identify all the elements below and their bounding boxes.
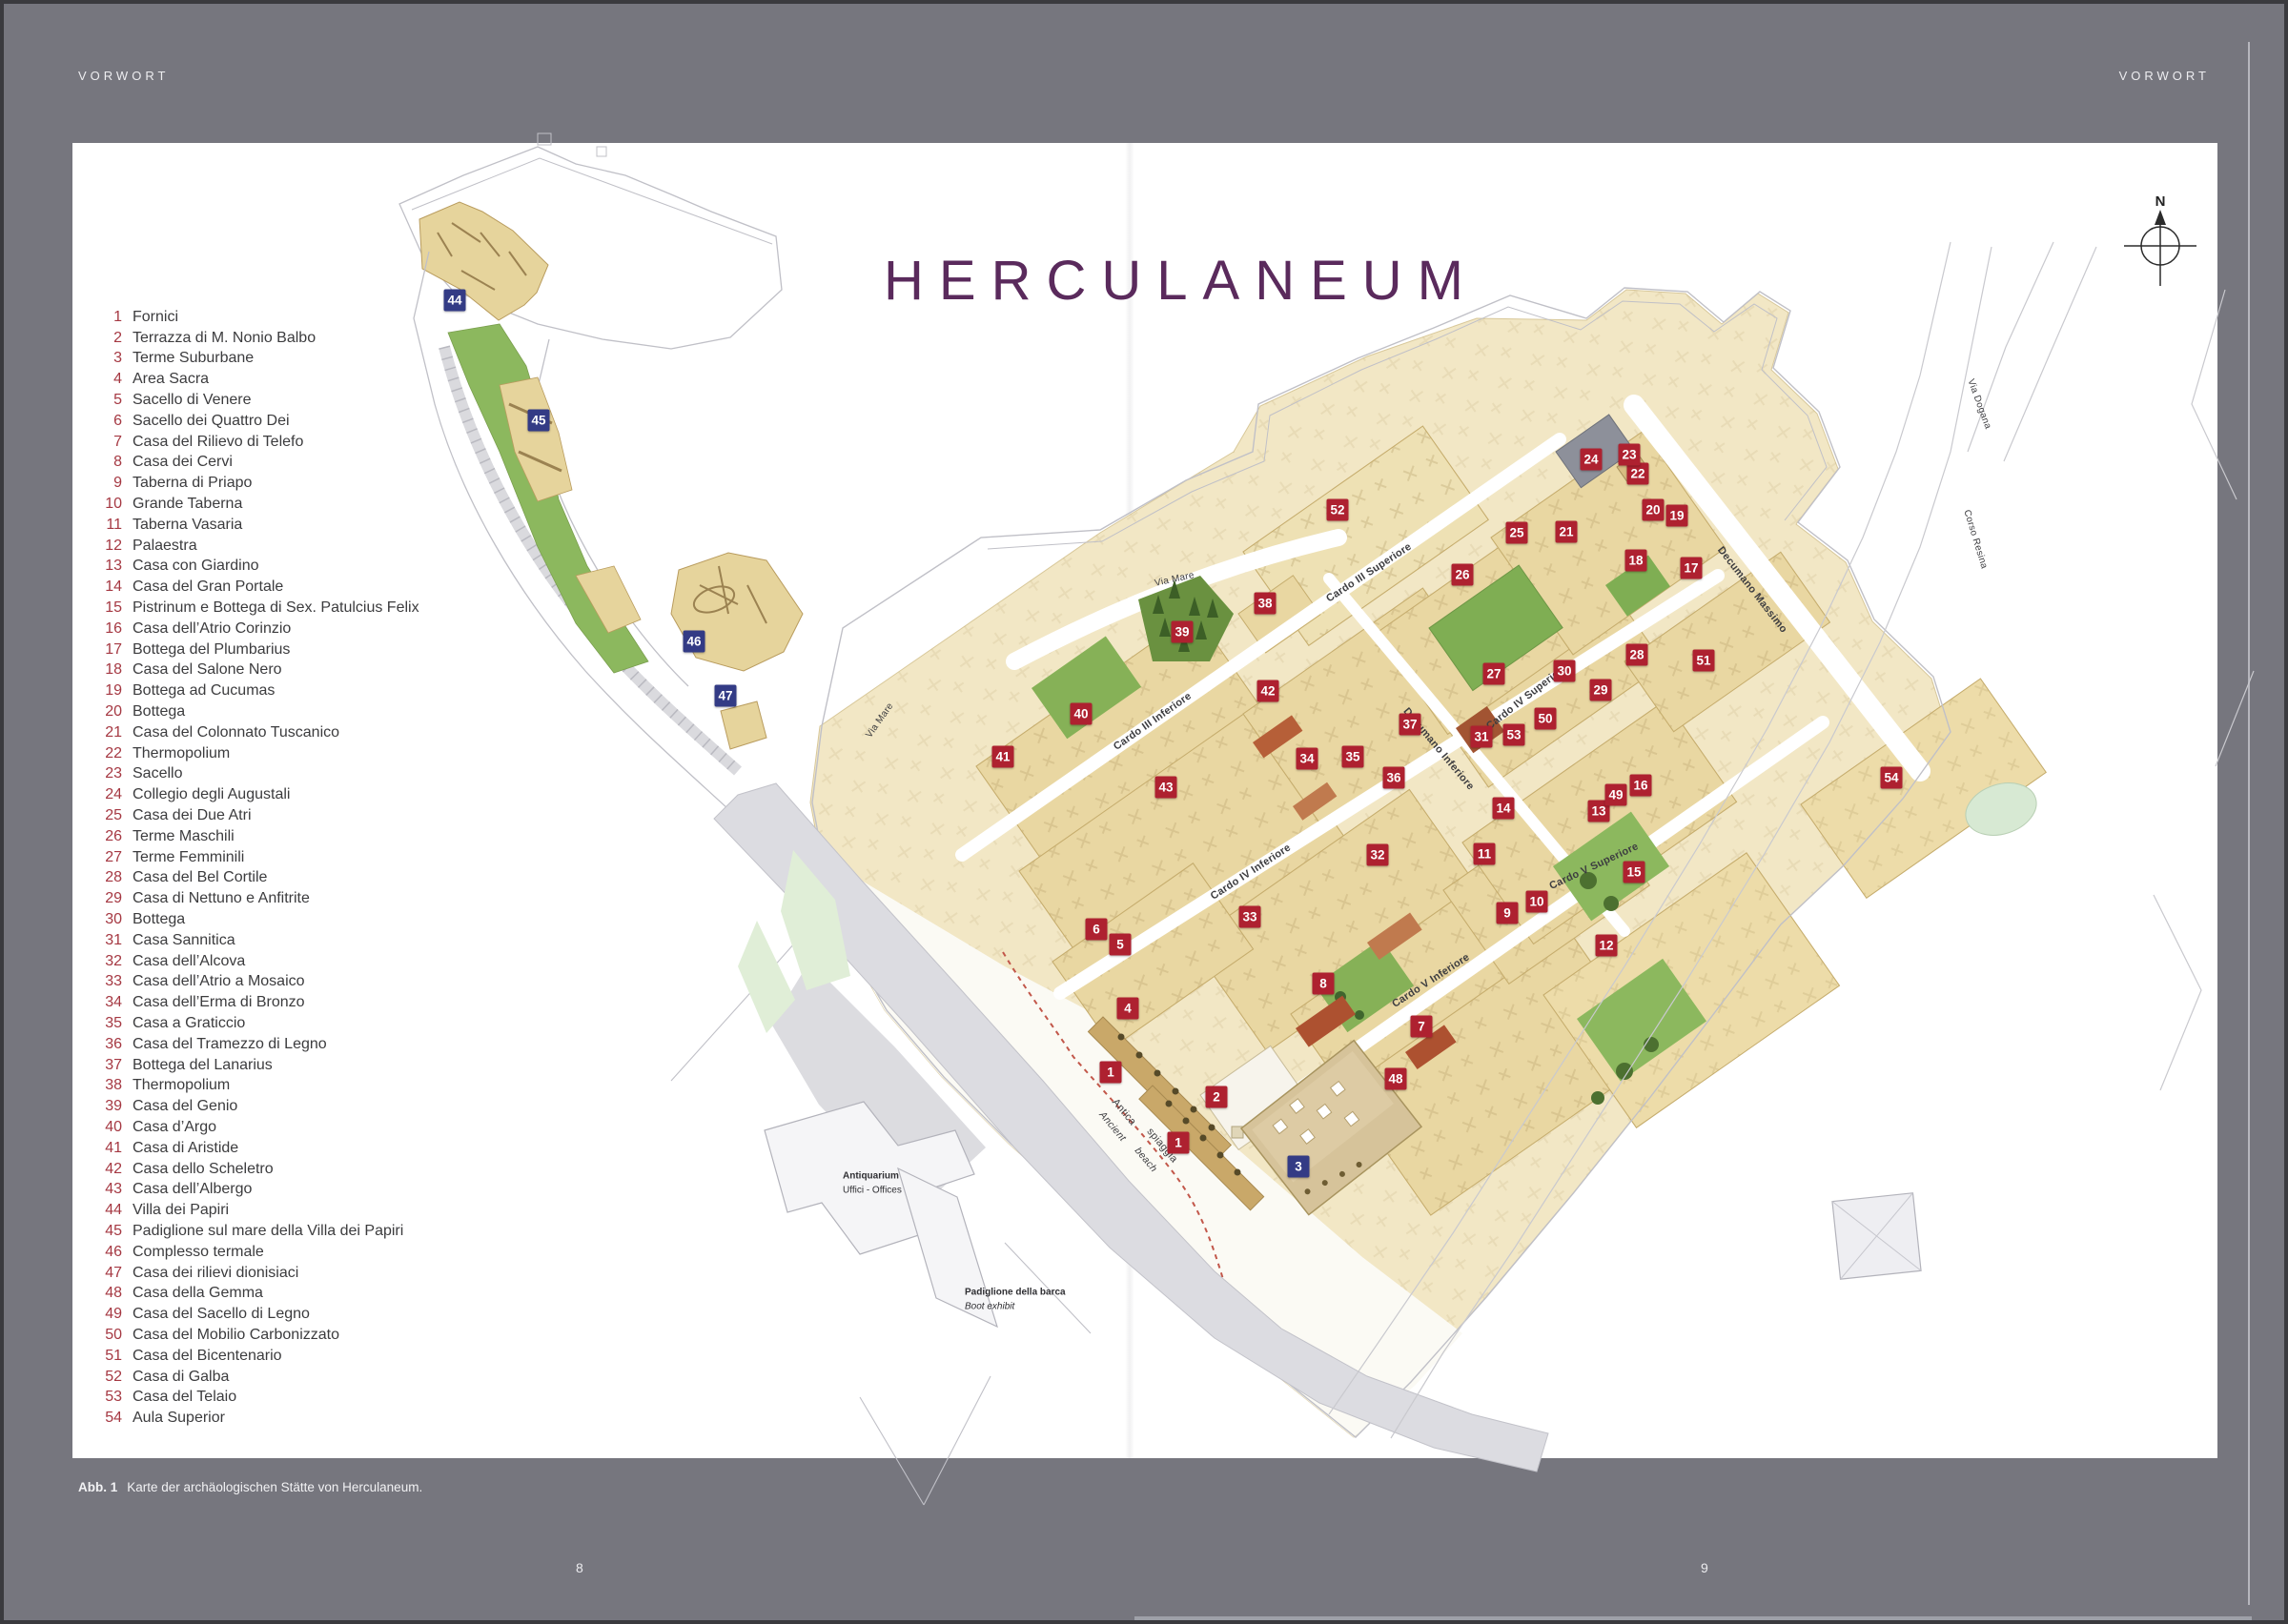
legend-number: 18 [88,661,122,679]
page-number-left: 8 [576,1560,583,1575]
legend-label: Thermopolium [133,745,230,762]
figure-caption-text: Karte der archäologischen Stätte von Her… [127,1480,422,1494]
legend-label: Casa d’Argo [133,1119,216,1136]
legend-item-10: 10Grande Taberna [88,494,419,515]
legend-number: 17 [88,641,122,659]
legend-item-48: 48Casa della Gemma [88,1283,419,1304]
legend-number: 50 [88,1327,122,1344]
legend-number: 54 [88,1410,122,1427]
legend-item-17: 17Bottega del Plumbarius [88,639,419,660]
legend-label: Casa del Sacello di Legno [133,1306,310,1323]
figure-caption-label: Abb. 1 [78,1480,117,1494]
legend-label: Bottega del Lanarius [133,1057,273,1074]
legend-item-39: 39Casa del Genio [88,1096,419,1117]
legend-number: 13 [88,558,122,575]
legend-label: Terme Femminili [133,849,244,866]
legend-number: 24 [88,786,122,803]
legend-item-44: 44Villa dei Papiri [88,1200,419,1221]
legend-item-40: 40Casa d’Argo [88,1117,419,1138]
legend-item-23: 23Sacello [88,764,419,785]
legend-number: 15 [88,599,122,617]
legend-label: Casa dell’Atrio a Mosaico [133,973,305,990]
legend-label: Casa dei Due Atri [133,807,252,824]
legend-item-42: 42Casa dello Scheletro [88,1159,419,1180]
legend-number: 7 [88,434,122,451]
legend-label: Casa della Gemma [133,1285,263,1302]
legend-number: 2 [88,330,122,347]
legend-number: 29 [88,890,122,907]
legend-number: 14 [88,579,122,596]
legend-label: Casa dell’Atrio Corinzio [133,620,291,638]
legend-label: Fornici [133,309,178,326]
legend-label: Casa del Colonnato Tuscanico [133,724,339,741]
legend-label: Casa del Genio [133,1098,237,1115]
legend-list: 1Fornici2Terrazza di M. Nonio Balbo3Term… [88,307,419,1429]
legend-label: Terrazza di M. Nonio Balbo [133,330,316,347]
legend-number: 6 [88,413,122,430]
legend-item-51: 51Casa del Bicentenario [88,1346,419,1367]
legend-item-52: 52Casa di Galba [88,1367,419,1388]
legend-number: 16 [88,620,122,638]
legend-label: Villa dei Papiri [133,1202,229,1219]
legend-number: 45 [88,1223,122,1240]
legend-number: 42 [88,1161,122,1178]
legend-item-31: 31Casa Sannitica [88,930,419,951]
legend-label: Grande Taberna [133,496,242,513]
legend-item-14: 14Casa del Gran Portale [88,577,419,598]
legend-label: Casa a Graticcio [133,1015,245,1032]
legend-item-16: 16Casa dell’Atrio Corinzio [88,619,419,639]
legend-label: Casa di Nettuno e Anfitrite [133,890,310,907]
legend-label: Casa con Giardino [133,558,259,575]
legend-item-43: 43Casa dell’Albergo [88,1179,419,1200]
legend-label: Sacello dei Quattro Dei [133,413,290,430]
legend-item-45: 45Padiglione sul mare della Villa dei Pa… [88,1221,419,1242]
legend-label: Sacello [133,765,182,782]
legend-number: 53 [88,1389,122,1406]
map-title: HERCULANEUM [884,249,1479,313]
running-head-right: VORWORT [2119,69,2210,83]
legend-item-34: 34Casa dell’Erma di Bronzo [88,992,419,1013]
legend-item-13: 13Casa con Giardino [88,557,419,578]
legend-item-46: 46Complesso termale [88,1242,419,1263]
legend-number: 26 [88,828,122,845]
legend-label: Taberna di Priapo [133,475,252,492]
legend-number: 36 [88,1036,122,1053]
legend-item-49: 49Casa del Sacello di Legno [88,1304,419,1325]
legend-item-38: 38Thermopolium [88,1075,419,1096]
legend-item-7: 7Casa del Rilievo di Telefo [88,432,419,453]
running-head-left: VORWORT [78,69,169,83]
legend-item-18: 18Casa del Salone Nero [88,660,419,681]
legend-number: 49 [88,1306,122,1323]
legend-item-12: 12Palaestra [88,536,419,557]
legend-item-30: 30Bottega [88,909,419,930]
legend-item-41: 41Casa di Aristide [88,1138,419,1159]
legend-label: Casa dell’Alcova [133,953,245,970]
legend-item-37: 37Bottega del Lanarius [88,1055,419,1076]
legend-label: Pistrinum e Bottega di Sex. Patulcius Fe… [133,599,419,617]
legend-label: Casa del Rilievo di Telefo [133,434,303,451]
legend-label: Casa dell’Albergo [133,1181,252,1198]
legend-number: 4 [88,371,122,388]
legend-label: Casa del Bicentenario [133,1348,282,1365]
legend-item-8: 8Casa dei Cervi [88,453,419,474]
legend-number: 33 [88,973,122,990]
legend-number: 10 [88,496,122,513]
legend-number: 8 [88,454,122,471]
legend-number: 5 [88,392,122,409]
legend-number: 46 [88,1244,122,1261]
legend-item-54: 54Aula Superior [88,1408,419,1429]
legend-number: 35 [88,1015,122,1032]
legend-item-35: 35Casa a Graticcio [88,1013,419,1034]
page-edge-right [2248,42,2250,1605]
legend-item-4: 4Area Sacra [88,369,419,390]
legend-label: Casa del Tramezzo di Legno [133,1036,327,1053]
legend-number: 41 [88,1140,122,1157]
legend-item-19: 19Bottega ad Cucumas [88,680,419,701]
legend-item-36: 36Casa del Tramezzo di Legno [88,1034,419,1055]
legend-item-29: 29Casa di Nettuno e Anfitrite [88,888,419,909]
legend-number: 11 [88,517,122,534]
legend-number: 28 [88,869,122,886]
page-edge-bottom [1134,1616,2252,1623]
legend-label: Complesso termale [133,1244,264,1261]
legend-label: Area Sacra [133,371,209,388]
legend-item-27: 27Terme Femminili [88,847,419,868]
legend-number: 48 [88,1285,122,1302]
legend-number: 3 [88,350,122,367]
legend-label: Palaestra [133,538,197,555]
legend-label: Casa di Galba [133,1369,229,1386]
legend-label: Aula Superior [133,1410,225,1427]
legend-item-53: 53Casa del Telaio [88,1387,419,1408]
legend-label: Casa Sannitica [133,932,235,949]
legend-number: 22 [88,745,122,762]
legend-item-21: 21Casa del Colonnato Tuscanico [88,722,419,743]
legend-item-26: 26Terme Maschili [88,826,419,847]
legend-label: Padiglione sul mare della Villa dei Papi… [133,1223,403,1240]
legend-item-33: 33Casa dell’Atrio a Mosaico [88,972,419,993]
legend-number: 52 [88,1369,122,1386]
legend-number: 44 [88,1202,122,1219]
legend-item-24: 24Collegio degli Augustali [88,784,419,805]
legend-item-1: 1Fornici [88,307,419,328]
legend-label: Casa del Mobilio Carbonizzato [133,1327,339,1344]
legend-item-9: 9Taberna di Priapo [88,473,419,494]
legend-item-20: 20Bottega [88,701,419,722]
legend-item-50: 50Casa del Mobilio Carbonizzato [88,1325,419,1346]
legend-label: Bottega [133,911,185,928]
legend-item-25: 25Casa dei Due Atri [88,805,419,826]
legend-label: Bottega del Plumbarius [133,641,290,659]
book-spread: VORWORT VORWORT [0,0,2288,1624]
legend-number: 27 [88,849,122,866]
legend-number: 9 [88,475,122,492]
legend-number: 20 [88,703,122,721]
legend-number: 12 [88,538,122,555]
legend-label: Terme Maschili [133,828,235,845]
legend-label: Collegio degli Augustali [133,786,290,803]
legend-label: Taberna Vasaria [133,517,242,534]
legend-number: 34 [88,994,122,1011]
legend-label: Terme Suburbane [133,350,254,367]
legend-label: Casa di Aristide [133,1140,238,1157]
page-gutter [1125,143,1134,1458]
legend-label: Casa dei rilievi dionisiaci [133,1265,298,1282]
legend-number: 47 [88,1265,122,1282]
legend-number: 25 [88,807,122,824]
legend-item-15: 15Pistrinum e Bottega di Sex. Patulcius … [88,598,419,619]
legend-item-28: 28Casa del Bel Cortile [88,868,419,889]
legend-item-6: 6Sacello dei Quattro Dei [88,411,419,432]
legend-item-47: 47Casa dei rilievi dionisiaci [88,1263,419,1284]
legend-label: Bottega ad Cucumas [133,682,275,700]
legend-label: Casa dei Cervi [133,454,233,471]
legend-number: 37 [88,1057,122,1074]
legend-item-22: 22Thermopolium [88,743,419,764]
legend-number: 19 [88,682,122,700]
legend-number: 32 [88,953,122,970]
legend-label: Casa del Bel Cortile [133,869,267,886]
legend-number: 1 [88,309,122,326]
legend-label: Casa dell’Erma di Bronzo [133,994,305,1011]
legend-item-11: 11Taberna Vasaria [88,515,419,536]
figure-caption: Abb. 1Karte der archäologischen Stätte v… [78,1480,422,1494]
legend-number: 21 [88,724,122,741]
legend-label: Thermopolium [133,1077,230,1094]
legend-number: 31 [88,932,122,949]
legend-item-3: 3Terme Suburbane [88,349,419,370]
legend-number: 38 [88,1077,122,1094]
legend-number: 30 [88,911,122,928]
legend-item-32: 32Casa dell’Alcova [88,951,419,972]
legend-label: Casa dello Scheletro [133,1161,274,1178]
page-number-right: 9 [1701,1560,1708,1575]
legend-number: 51 [88,1348,122,1365]
legend-number: 40 [88,1119,122,1136]
legend-item-5: 5Sacello di Venere [88,390,419,411]
legend-label: Bottega [133,703,185,721]
legend-label: Casa del Telaio [133,1389,236,1406]
legend-number: 43 [88,1181,122,1198]
legend-label: Casa del Salone Nero [133,661,282,679]
legend-label: Sacello di Venere [133,392,252,409]
legend-label: Casa del Gran Portale [133,579,283,596]
legend-number: 39 [88,1098,122,1115]
legend-number: 23 [88,765,122,782]
legend-item-2: 2Terrazza di M. Nonio Balbo [88,328,419,349]
